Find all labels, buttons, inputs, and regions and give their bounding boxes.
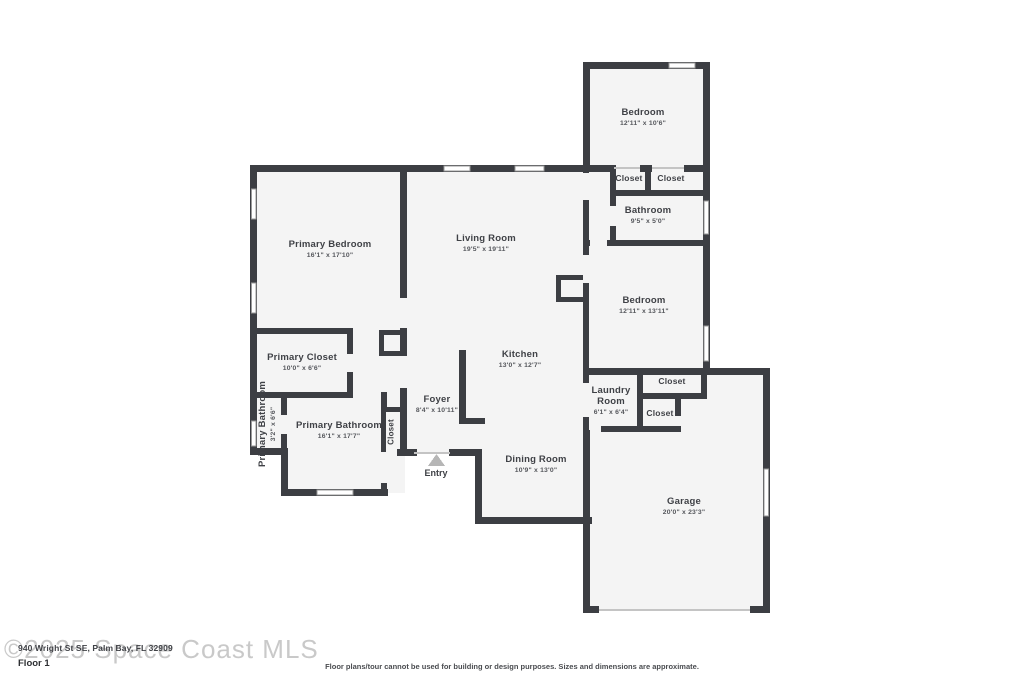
room-label-bathroom: Bathroom 9'5" x 5'0" [625, 206, 671, 226]
room-label-garage: Garage 20'0" x 23'3" [663, 497, 706, 517]
room-label-closet-hall: Closet [386, 419, 395, 445]
room-label-primary-bedroom: Primary Bedroom 16'1" x 17'10" [289, 240, 372, 260]
room-label-closet-top-2: Closet [657, 174, 684, 184]
address-overlay: 940 Wright St SE, Palm Bay, FL 32909 [18, 643, 173, 653]
entry-arrow-icon [428, 454, 445, 466]
floorplan-page: Bedroom 12'11" x 10'6" Closet Closet Bat… [0, 0, 1024, 683]
room-label-kitchen: Kitchen 13'0" x 12'7" [499, 350, 542, 370]
room-label-closet-laundry-1: Closet [658, 377, 685, 387]
room-label-closet-top-1: Closet [615, 174, 642, 184]
room-label-dining-room: Dining Room 10'9" x 13'0" [505, 455, 566, 475]
room-label-bedroom-right: Bedroom 12'11" x 13'11" [619, 296, 669, 316]
room-label-closet-laundry-2: Closet [646, 409, 673, 419]
room-label-foyer: Foyer 8'4" x 10'11" [416, 395, 458, 415]
room-label-primary-bathroom-small: Primary Bathroom 3'2" x 6'6" [258, 381, 278, 467]
room-fills [253, 65, 767, 611]
room-label-bedroom-top: Bedroom 12'11" x 10'6" [620, 108, 666, 128]
room-label-living-room: Living Room 19'5" x 19'11" [456, 234, 516, 254]
entry-label: Entry [424, 468, 447, 478]
room-label-primary-bathroom: Primary Bathroom 16'1" x 17'7" [296, 421, 382, 441]
disclaimer-text: Floor plans/tour cannot be used for buil… [0, 662, 1024, 671]
room-label-laundry-room: Laundry Room 6'1" x 6'4" [585, 386, 637, 417]
room-label-primary-closet: Primary Closet 10'0" x 6'6" [267, 353, 337, 373]
floorplan-drawing [0, 0, 1024, 683]
